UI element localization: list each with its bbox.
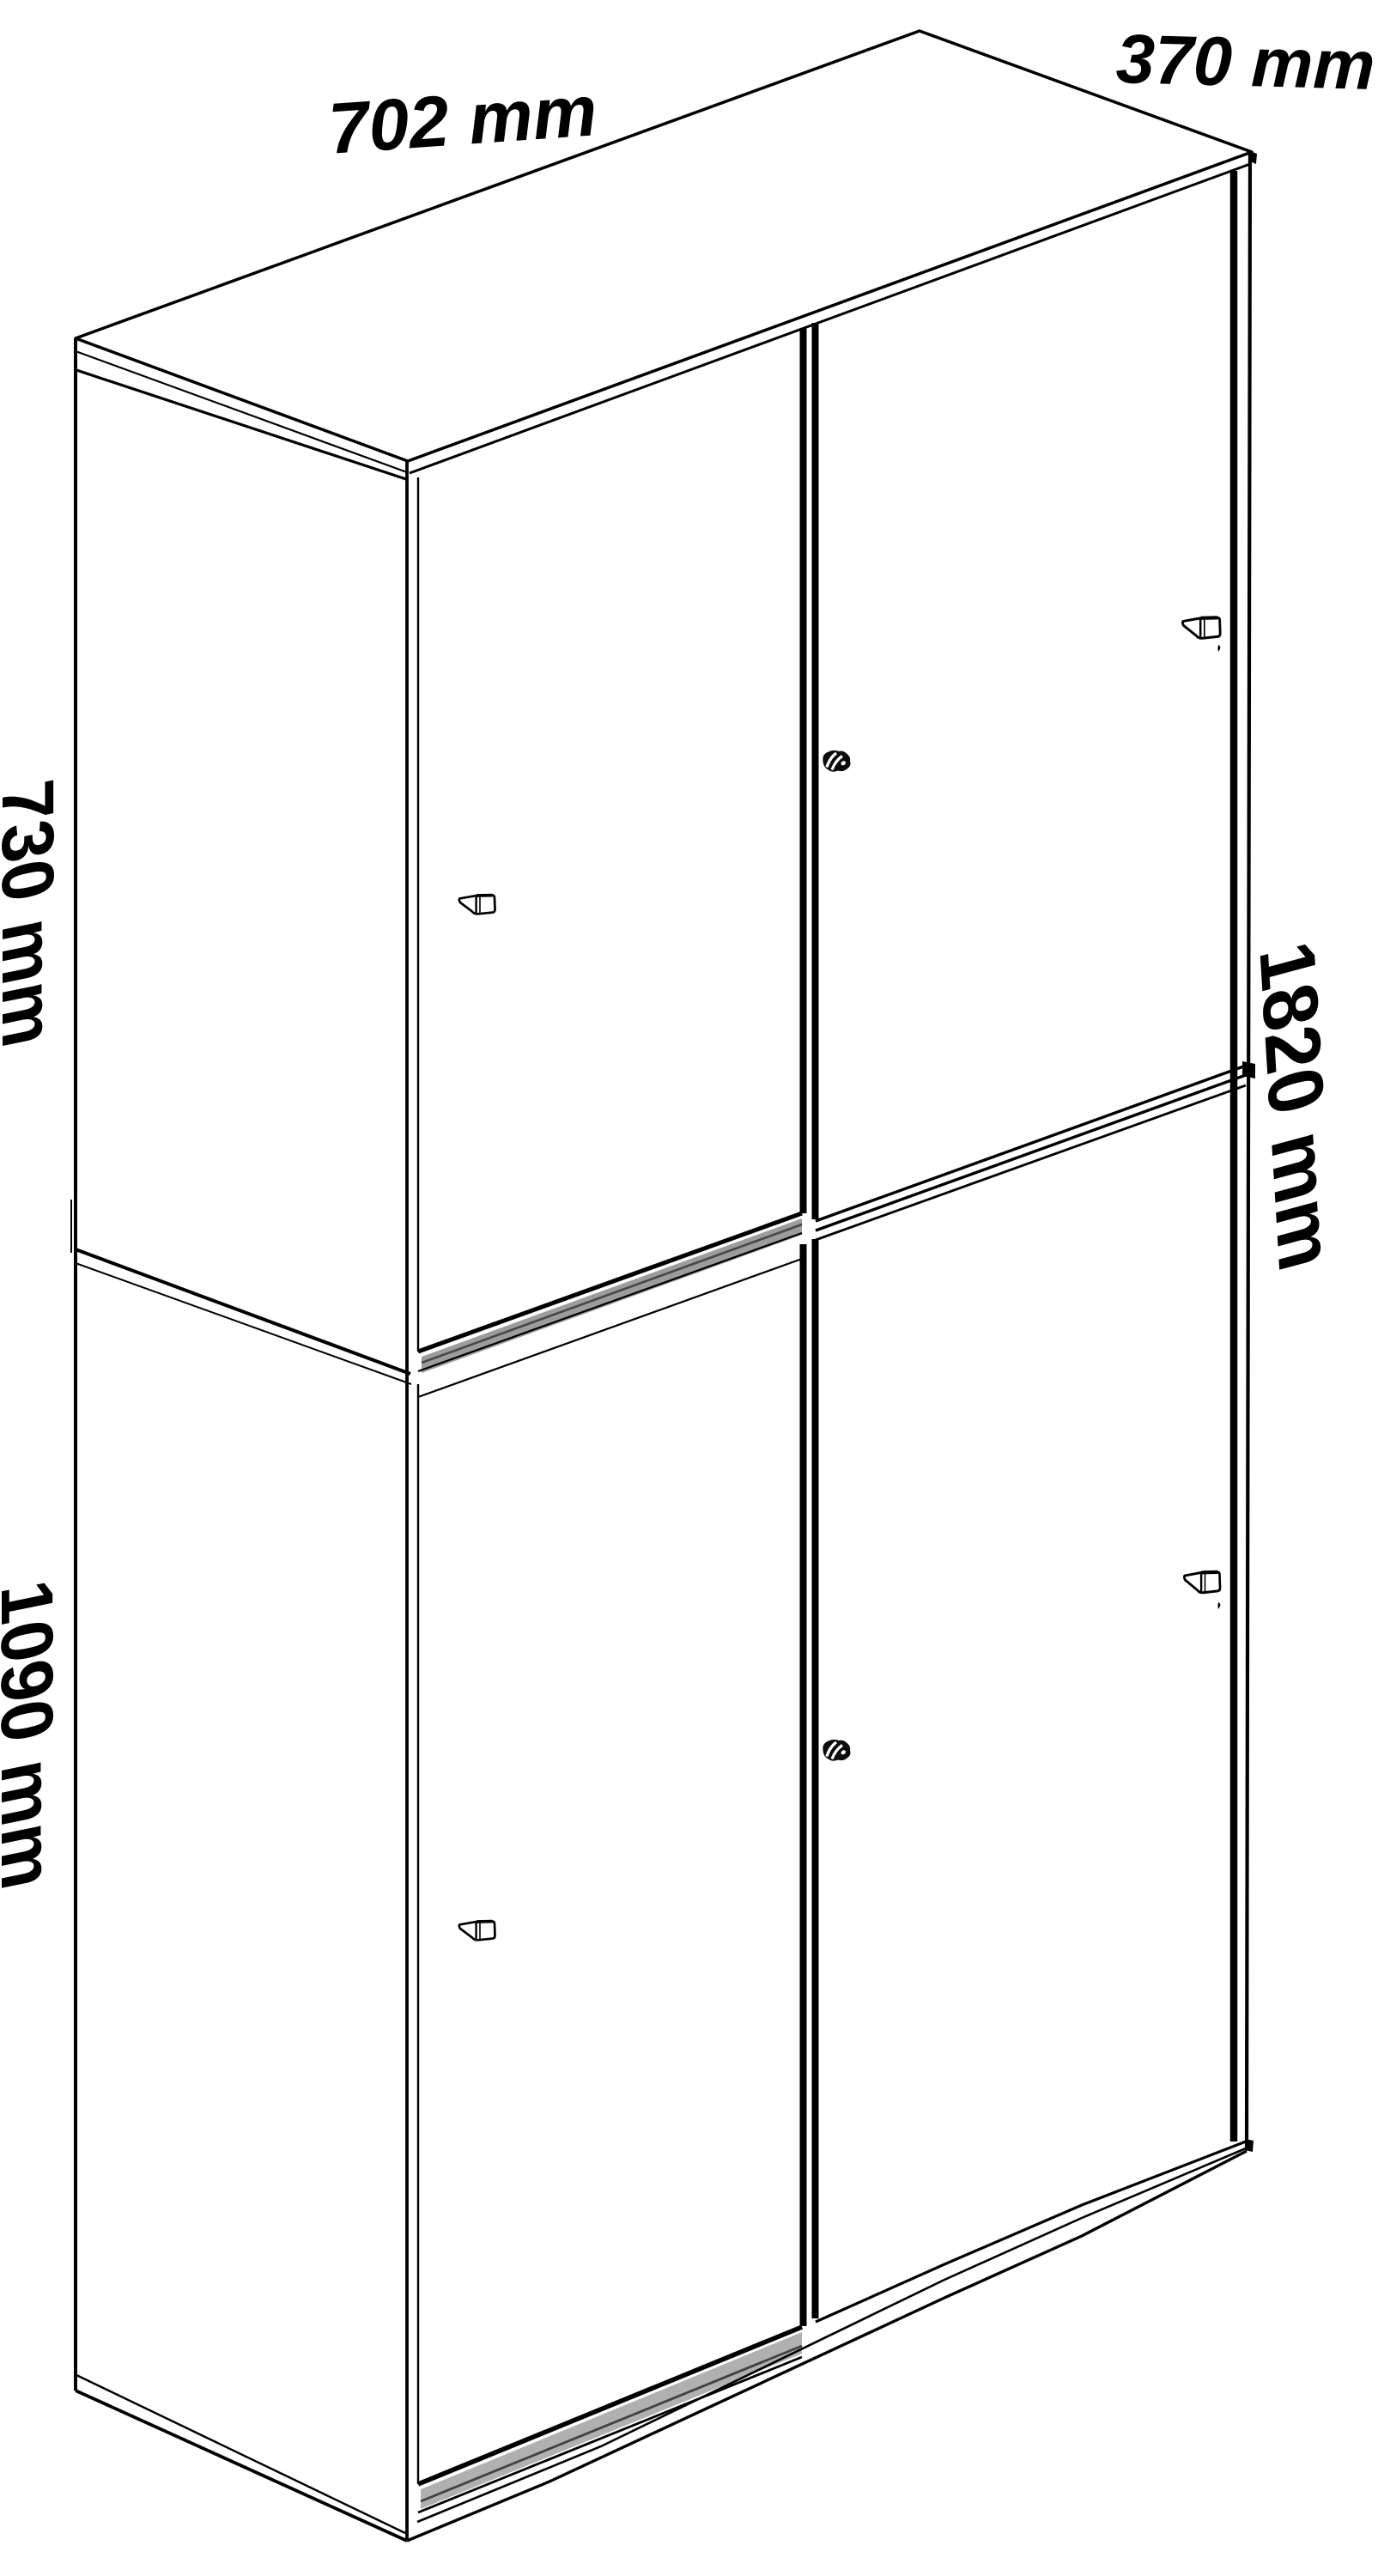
svg-text:702 mm: 702 mm: [326, 70, 600, 169]
svg-text:1090 mm: 1090 mm: [0, 1573, 68, 1896]
svg-text:1820 mm: 1820 mm: [1243, 933, 1350, 1279]
svg-text:370 mm: 370 mm: [1115, 21, 1376, 105]
svg-text:730 mm: 730 mm: [0, 774, 69, 1054]
